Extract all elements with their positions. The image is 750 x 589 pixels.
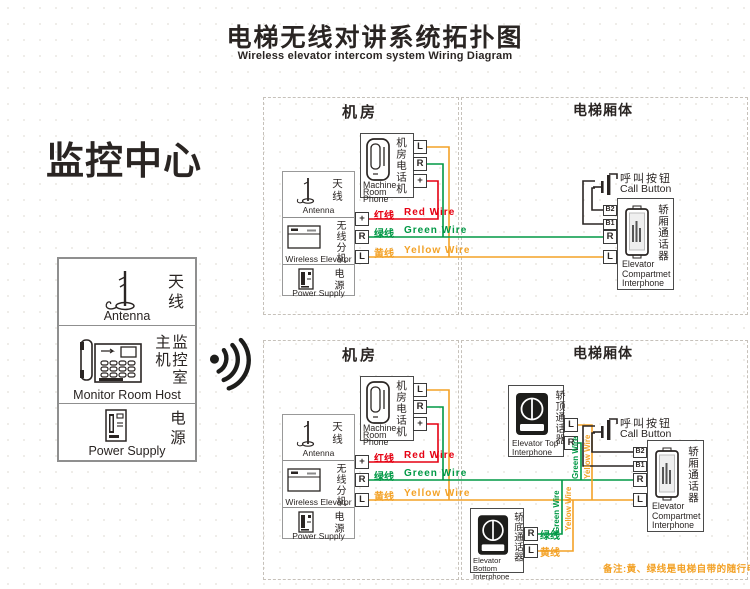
compartment-interphone-label-zh: 轿厢通话器 [656,204,671,266]
terminal-bottom-interphone-l: L [524,544,538,558]
call-button-label-en-1: Call Button [620,183,671,195]
speaker-icon [515,392,549,436]
antenna-label-zh: 天线 [330,421,345,449]
wire-label-green-en-1: Green Wire [404,225,467,236]
machine-room-phone-icon [365,138,391,182]
power-label-en: Power Supply [283,531,354,541]
wire-label-green-en-2: Green Wire [404,468,467,479]
terminal-compartment-l-2: L [633,493,647,507]
terminal-top-interphone-l: L [564,418,578,432]
terminal-phone-l-1: L [413,140,427,154]
mr-wireless-row-1: 无线分机 Wireless Elevator [283,217,354,264]
monitor-power-row: 电源 Power Supply [59,403,195,460]
terminal-compartment-b1-1: B1 [603,219,617,230]
antenna-icon [296,176,318,206]
wireless-extension-label-en: Wireless Elevator [283,497,354,507]
wire-label-red-en-2: Red Wire [404,450,455,461]
terminal-wireless-plus-1: + [355,212,369,226]
bottom-interphone-label-en: Elevator Bottom Interphone [473,557,523,582]
bottom-interphone-l-wire-label: 黄线 [540,544,560,559]
compartment-interphone-label-zh: 轿厢通话器 [686,446,701,508]
footnote: 备注:黄、绿线是电梯自带的随行电缆 [603,561,750,575]
power-supply-icon [297,268,315,290]
terminal-wireless-plus-2: + [355,455,369,469]
section-label-elevator-body-1: 电梯厢体 [570,100,636,120]
wire-label-yellow-zh-1: 黄线 [374,245,394,260]
antenna-label-en: Antenna [283,205,354,215]
terminal-compartment-l-1: L [603,250,617,264]
bottom-interphone-r-wire-label: 绿线 [540,527,560,542]
machine-room-phone-2: 机房电话机 Machine Room Phone [360,376,414,441]
machine-room-phone-1: 机房电话机 Machine Room Phone [360,133,414,198]
wire-label-yellow-vert-drop: Yellow Wire [564,487,573,531]
compartment-interphone-label-en: Elevator Compartmet Interphone [652,502,700,531]
mr-antenna-row-2: 天线 Antenna [283,415,354,460]
mr-power-row-1: 电源 Power Supply [283,264,354,297]
power-supply-icon [103,409,129,443]
call-button-label-en-2: Call Button [620,428,671,440]
terminal-wireless-r-2: R [355,473,369,487]
machine-room-phone-label-en: Machine Room Phone [363,182,413,203]
monitor-center-panel: 天线 Antenna 监控室主机 Monitor Room Host [57,257,197,462]
terminal-wireless-r-1: R [355,230,369,244]
host-label-zh: 监控室主机 [153,334,187,390]
compartment-interphone-icon [623,205,651,259]
wire-label-green-zh-1: 绿线 [374,225,394,240]
wire-label-green-vert-riser: Green Wire [571,436,580,479]
wire-label-yellow-en-1: Yellow Wire [404,245,470,256]
wire-label-yellow-zh-2: 黄线 [374,488,394,503]
top-interphone: 轿顶通话器 Elevator Top Interphone [508,385,564,457]
machine-room-phone-icon [365,381,391,425]
host-label-en: Monitor Room Host [59,388,195,402]
power-label-en: Power Supply [283,288,354,298]
terminal-compartment-b2-1: B2 [603,205,617,216]
antenna-icon [296,419,318,449]
antenna-label-zh: 天线 [330,178,345,206]
antenna-label-en: Antenna [283,448,354,458]
terminal-compartment-r-1: R [603,230,617,244]
machine-room-equipment-2: 天线 Antenna 无线分机 Wireless Elevator 电源 Pow… [282,414,355,539]
terminal-bottom-interphone-r: R [524,527,538,541]
compartment-interphone-label-en: Elevator Compartmet Interphone [622,260,670,289]
terminal-compartment-r-2: R [633,473,647,487]
wire-label-red-zh-2: 红线 [374,450,394,465]
terminal-wireless-l-2: L [355,493,369,507]
call-button-icon [593,415,619,441]
monitor-antenna-row: 天线 Antenna [59,259,195,325]
compartment-interphone-icon [653,447,681,501]
wire-label-red-zh-1: 红线 [374,207,394,222]
section-label-machine-room-2: 机房 [329,344,391,365]
monitor-host-row: 监控室主机 Monitor Room Host [59,325,195,403]
compartment-interphone-2: 轿厢通话器 Elevator Compartmet Interphone [647,440,704,532]
terminal-phone-plus-2: + [413,417,427,431]
section-label-machine-room-1: 机房 [329,101,391,122]
power-supply-icon [297,511,315,533]
terminal-phone-l-2: L [413,383,427,397]
wire-label-yellow-vert-riser: Yellow Wire [583,435,592,479]
terminal-phone-plus-1: + [413,174,427,188]
machine-room-equipment-1: 天线 Antenna 无线分机 Wireless Elevator 电源 Pow… [282,171,355,296]
wire-label-red-en-1: Red Wire [404,207,455,218]
desk-phone-icon [79,334,145,388]
wireless-extension-label-en: Wireless Elevator [283,254,354,264]
bottom-interphone: 轿底通话器 Elevator Bottom Interphone [470,508,524,573]
speaker-icon [477,514,509,556]
terminal-phone-r-1: R [413,157,427,171]
terminal-phone-r-2: R [413,400,427,414]
wire-label-yellow-en-2: Yellow Wire [404,488,470,499]
mr-power-row-2: 电源 Power Supply [283,507,354,540]
compartment-interphone-1: 轿厢通话器 Elevator Compartmet Interphone [617,198,674,290]
wire-label-green-zh-2: 绿线 [374,468,394,483]
wiring-diagram-canvas: 电梯无线对讲系统拓扑图 Wireless elevator intercom s… [0,0,750,589]
wireless-extension-icon [287,467,321,493]
call-button-icon [593,170,619,196]
mr-antenna-row-1: 天线 Antenna [283,172,354,217]
terminal-compartment-b1-2: B1 [633,461,647,472]
power-label-en: Power Supply [59,444,195,458]
terminal-wireless-l-1: L [355,250,369,264]
mr-wireless-row-2: 无线分机 Wireless Elevator [283,460,354,507]
wireless-extension-icon [287,224,321,250]
antenna-icon [99,267,145,313]
top-interphone-label-en: Elevator Top Interphone [512,439,558,457]
terminal-compartment-b2-2: B2 [633,447,647,458]
section-label-elevator-body-2: 电梯厢体 [570,343,636,363]
machine-room-phone-label-en: Machine Room Phone [363,425,413,446]
